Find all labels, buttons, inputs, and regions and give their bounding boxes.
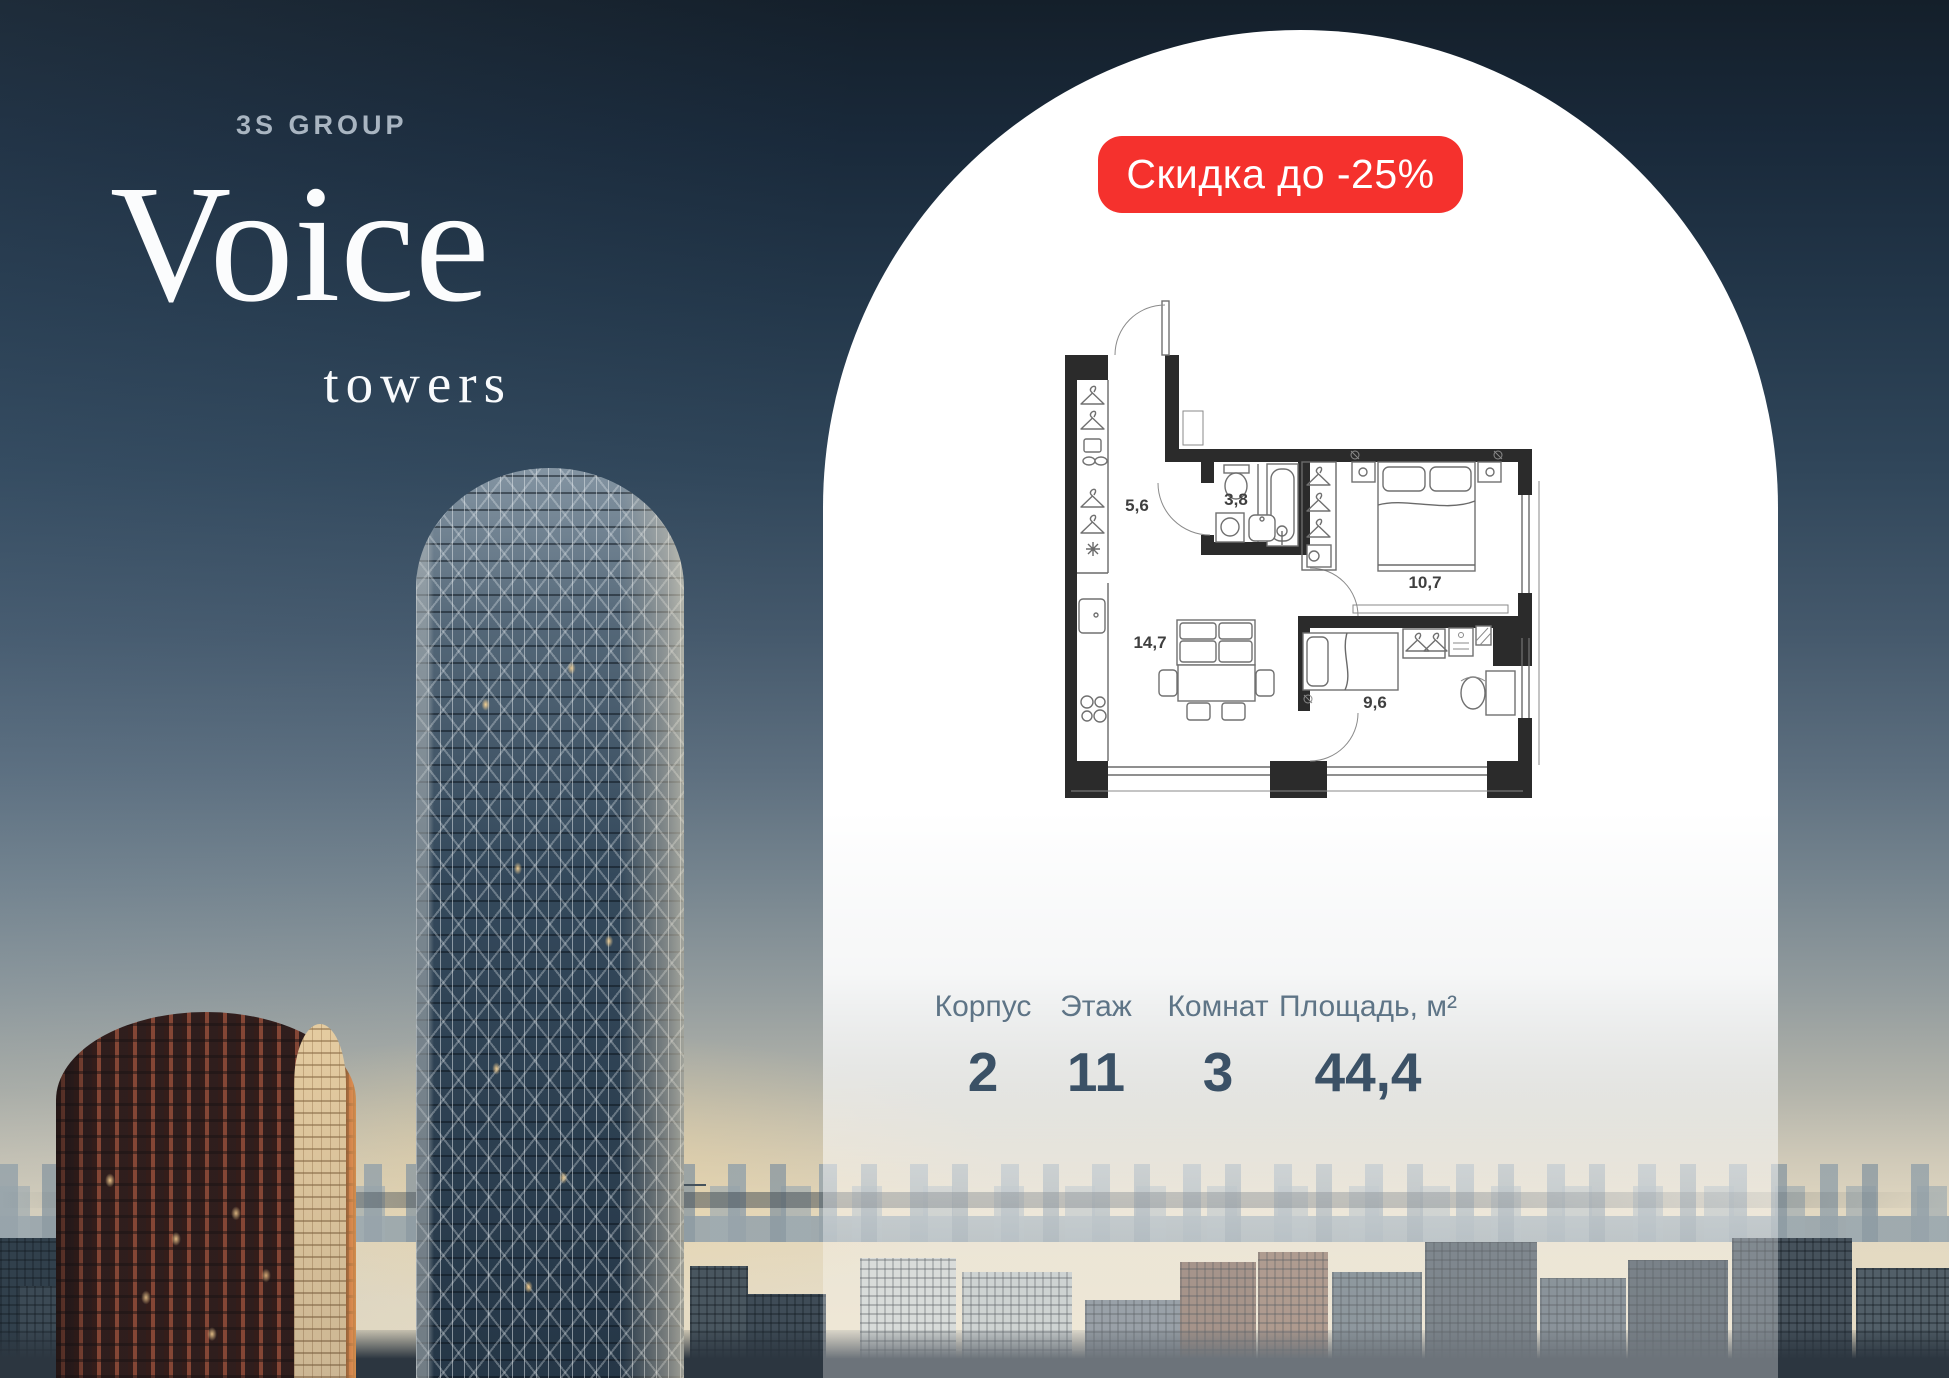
shoes-icon bbox=[1083, 457, 1095, 465]
bedroom-second-door-arc bbox=[1310, 713, 1358, 761]
electric-panel bbox=[1183, 411, 1203, 445]
hanger-icon bbox=[1424, 633, 1447, 651]
stat-label-area: Площадь, м² bbox=[1279, 990, 1457, 1024]
pillow-icon bbox=[1383, 467, 1425, 491]
stat-value-floor: 11 bbox=[1060, 1040, 1132, 1104]
toilet-icon bbox=[1224, 465, 1249, 473]
stat-value-rooms: 3 bbox=[1167, 1040, 1268, 1104]
bedroom-main-door-arc bbox=[1310, 568, 1358, 616]
hanger-icon bbox=[1307, 493, 1330, 511]
chair-icon bbox=[1187, 703, 1210, 720]
entrance-door-arc bbox=[1115, 305, 1165, 355]
kitchen-sink-icon bbox=[1079, 599, 1105, 633]
room-bedroom-second: 9,6 bbox=[1303, 626, 1515, 715]
stat-label-rooms: Комнат bbox=[1167, 990, 1268, 1024]
bathroom-door-arc bbox=[1158, 483, 1210, 535]
stat-label-floor: Этаж bbox=[1060, 990, 1132, 1024]
hanger-icon bbox=[1307, 467, 1330, 485]
hob-icon bbox=[1095, 697, 1105, 707]
pillow-icon bbox=[1430, 467, 1471, 491]
hanger-icon bbox=[1081, 386, 1104, 404]
tower-lit-end-facade bbox=[294, 1024, 346, 1378]
sofa-cushion bbox=[1219, 623, 1252, 639]
room-area-label: 9,6 bbox=[1363, 693, 1387, 712]
room-area-label: 5,6 bbox=[1125, 496, 1149, 515]
stat-rooms: Комнат 3 bbox=[1167, 990, 1268, 1104]
shoes-icon bbox=[1095, 457, 1107, 465]
hob-icon bbox=[1094, 710, 1106, 722]
sofa-cushion bbox=[1219, 641, 1252, 662]
sofa-cushion bbox=[1180, 641, 1216, 662]
rug bbox=[1353, 605, 1508, 613]
entrance-door-leaf bbox=[1162, 301, 1169, 355]
developer-logo: 3S GROUP bbox=[236, 110, 408, 141]
room-bedroom-main: 10,7 bbox=[1302, 451, 1508, 613]
chair-icon bbox=[1159, 670, 1177, 696]
room-area-label: 10,7 bbox=[1408, 573, 1441, 592]
room-bathroom: 3,8 bbox=[1216, 464, 1298, 546]
light-icon bbox=[1086, 542, 1100, 556]
project-logo: Voice bbox=[110, 160, 489, 328]
stat-label-block: Корпус bbox=[935, 990, 1032, 1024]
washer-icon bbox=[1221, 518, 1239, 536]
stat-value-area: 44,4 bbox=[1279, 1040, 1457, 1104]
lamp-icon bbox=[1486, 468, 1494, 476]
bag-icon bbox=[1084, 439, 1101, 452]
lamp-icon bbox=[1359, 468, 1367, 476]
project-logo-suffix: towers bbox=[300, 352, 512, 415]
sofa-cushion bbox=[1180, 623, 1216, 639]
faucet-icon bbox=[1094, 613, 1098, 617]
hob-icon bbox=[1082, 711, 1092, 721]
hanger-icon bbox=[1081, 411, 1104, 429]
walls bbox=[1065, 355, 1532, 798]
stat-floor: Этаж 11 bbox=[1060, 990, 1132, 1104]
lit-windows bbox=[416, 468, 684, 1378]
pillow-icon bbox=[1307, 637, 1328, 686]
chair-icon bbox=[1256, 670, 1274, 696]
faucet-icon bbox=[1260, 517, 1264, 521]
promo-flyer: 3S GROUP Voice towers Скидка до -25% bbox=[0, 0, 1949, 1378]
hob-icon bbox=[1081, 696, 1093, 708]
dining-table-icon bbox=[1178, 665, 1255, 701]
hanger-icon bbox=[1307, 519, 1330, 537]
room-hallway: 5,6 bbox=[1077, 380, 1149, 573]
stat-value-block: 2 bbox=[935, 1040, 1032, 1104]
floor-plan: 5,6 3,8 bbox=[1053, 243, 1543, 803]
hanger-icon bbox=[1406, 633, 1429, 651]
discount-badge[interactable]: Скидка до -25% bbox=[1098, 136, 1463, 213]
stat-area: Площадь, м² 44,4 bbox=[1279, 990, 1457, 1104]
room-area-label: 3,8 bbox=[1224, 490, 1248, 509]
room-area-label: 14,7 bbox=[1133, 633, 1166, 652]
chair-icon bbox=[1222, 703, 1245, 720]
stat-block: Корпус 2 bbox=[935, 990, 1032, 1104]
dryer-icon bbox=[1309, 551, 1319, 561]
hanger-icon bbox=[1081, 489, 1104, 507]
hanger-icon bbox=[1081, 515, 1104, 533]
desk-icon bbox=[1486, 671, 1515, 715]
voice-glass-tower bbox=[416, 468, 684, 1378]
arched-brick-tower bbox=[56, 1012, 356, 1378]
room-living-kitchen: 14,7 bbox=[1079, 583, 1274, 761]
desk-chair-icon bbox=[1461, 677, 1485, 709]
